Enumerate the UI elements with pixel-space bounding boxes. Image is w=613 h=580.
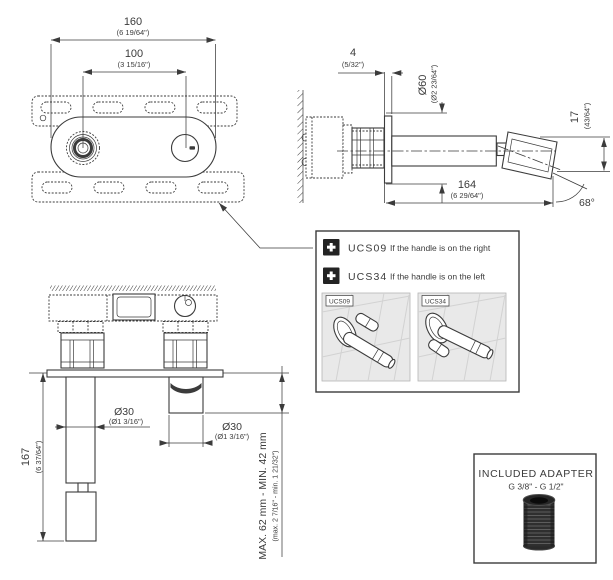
option-code: UCS09 bbox=[348, 243, 387, 255]
dim-d60-mm: Ø60 bbox=[417, 75, 429, 96]
brand-mark bbox=[190, 146, 196, 149]
dim-160-mm: 160 bbox=[124, 16, 142, 28]
mounting-plate-view: 160 (6 19/64") 100 (3 15/16") bbox=[32, 16, 313, 248]
dim-depth-mm: MAX. 62 mm - MIN. 42 mm bbox=[257, 432, 269, 559]
threaded-connector bbox=[352, 128, 384, 168]
leader-line bbox=[219, 203, 313, 248]
panel-tag: UCS34 bbox=[425, 299, 446, 306]
handle-cylinder bbox=[66, 492, 96, 541]
option-note: If the handle is on the left bbox=[390, 272, 486, 282]
faucet-front-view: 167 (6 37/64") Ø30 (Ø1 3/16") Ø30 (Ø1 3/… bbox=[20, 286, 289, 560]
dim-depth-in: (max. 2 7/16" - min. 1 21/32") bbox=[273, 451, 280, 542]
dim-wall-depth: MAX. 62 mm - MIN. 42 mm (max. 2 7/16" - … bbox=[205, 366, 289, 560]
option-code: UCS34 bbox=[348, 271, 387, 283]
spout-tip bbox=[502, 132, 557, 179]
dim-164-mm: 164 bbox=[458, 179, 476, 191]
faucet-installation-sheet: 160 (6 19/64") 100 (3 15/16") bbox=[0, 0, 613, 580]
dim-164: 164 (6 29/64") bbox=[386, 176, 553, 207]
adapter-title: INCLUDED ADAPTER bbox=[478, 468, 593, 480]
wall-hatch bbox=[298, 90, 304, 203]
technical-drawing-canvas: 160 (6 19/64") 100 (3 15/16") bbox=[0, 0, 613, 580]
threaded-block-left bbox=[61, 333, 104, 368]
option-panel-ucs34: UCS34 bbox=[418, 293, 506, 381]
center-union bbox=[113, 294, 155, 320]
threaded-block-right bbox=[164, 333, 207, 368]
dim-160-in: (6 19/64") bbox=[117, 28, 150, 37]
handle-axis bbox=[175, 296, 196, 317]
dim-d30-aerator-in: (Ø1 3/16") bbox=[215, 432, 250, 441]
spout-drop-tube bbox=[66, 377, 95, 483]
dim-167-in: (6 37/64") bbox=[34, 440, 43, 473]
dim-d30-spout-in: (Ø1 3/16") bbox=[109, 417, 144, 426]
dim-4-mm: 4 bbox=[350, 47, 356, 59]
panel-tag: UCS09 bbox=[329, 299, 350, 306]
dim-164-in: (6 29/64") bbox=[451, 191, 484, 200]
dim-angle-68: 68° bbox=[553, 173, 595, 209]
spout-side-view: 4 (5/32") Ø60 (Ø2 23/64") 17 (43/64") 16… bbox=[298, 47, 611, 209]
option-panel-ucs09: UCS09 bbox=[322, 293, 410, 381]
adapter-image bbox=[523, 495, 555, 551]
included-adapter-box: INCLUDED ADAPTER G 3/8" - G 1/2" bbox=[474, 454, 596, 563]
aerator-cylinder bbox=[169, 377, 203, 413]
dim-d60-in: (Ø2 23/64") bbox=[430, 64, 439, 103]
wall-hatch-horizontal bbox=[50, 286, 216, 292]
dim-17-mm: 17 bbox=[569, 111, 581, 123]
dim-100-in: (3 15/16") bbox=[118, 60, 151, 69]
dim-167: 167 (6 37/64") bbox=[20, 373, 64, 541]
handle-options-box: UCS09 If the handle is on the right UCS3… bbox=[316, 231, 519, 392]
angle-value: 68° bbox=[579, 197, 595, 209]
dim-167-mm: 167 bbox=[20, 448, 32, 466]
escutcheon-edge bbox=[47, 370, 223, 377]
dim-4: 4 (5/32") bbox=[338, 47, 403, 114]
escutcheon-flange bbox=[385, 116, 392, 183]
option-note: If the handle is on the right bbox=[390, 243, 491, 253]
dim-17-in: (43/64") bbox=[583, 102, 592, 129]
dim-100-mm: 100 bbox=[125, 48, 143, 60]
dim-d60: Ø60 (Ø2 23/64") bbox=[386, 64, 447, 203]
dim-4-in: (5/32") bbox=[342, 60, 365, 69]
dim-d30-aerator: Ø30 (Ø1 3/16") bbox=[160, 415, 250, 447]
adapter-spec: G 3/8" - G 1/2" bbox=[508, 482, 563, 492]
inwall-valve-body bbox=[306, 117, 343, 178]
